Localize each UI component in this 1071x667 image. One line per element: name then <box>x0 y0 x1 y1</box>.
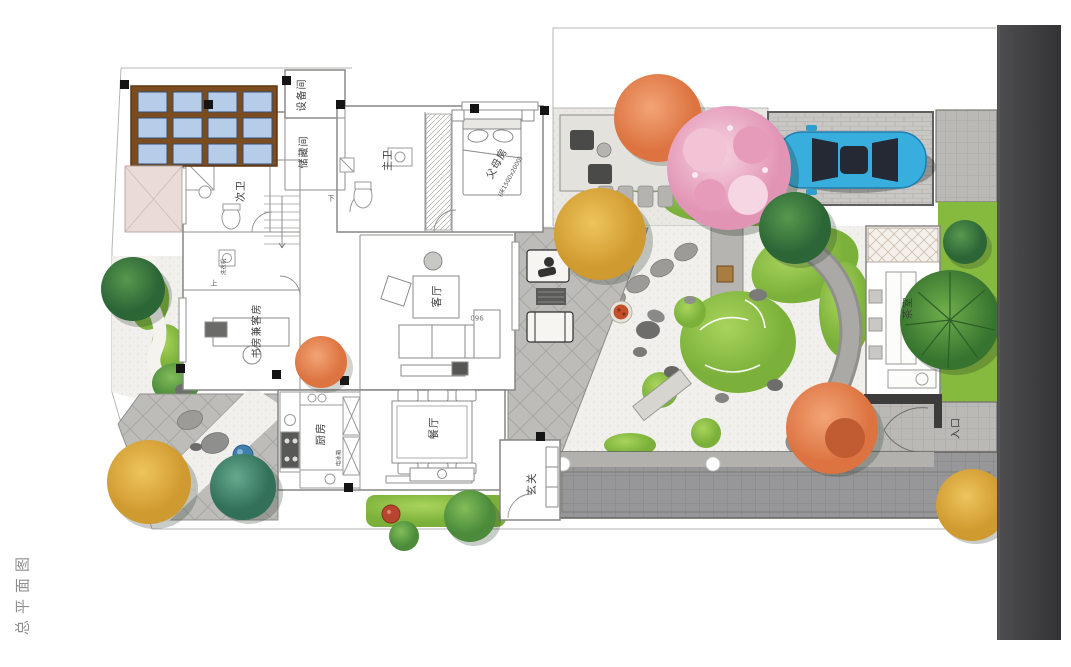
blue-car <box>776 125 936 195</box>
room-label-second-bath: 次卫 <box>237 180 247 202</box>
dark-boundary-strip <box>997 25 1061 640</box>
wardrobe-hatch <box>426 114 451 230</box>
room-label-study: 书房兼客房 <box>253 304 263 359</box>
stair-up-label: 上 <box>211 281 218 288</box>
label-kitchen-cabinet: 电冰箱 <box>337 450 343 467</box>
plan-title: 总平面图 <box>12 551 33 635</box>
bottom-walkway <box>552 452 998 518</box>
red-planter <box>382 505 400 523</box>
room-label-tea-room: 茶室 <box>903 297 914 320</box>
label-laundry: 洗衣机 <box>222 259 228 276</box>
label-entrance: 入口 <box>952 417 962 439</box>
topright-paving <box>936 110 997 202</box>
site-plan-drawing <box>0 0 1071 667</box>
skylight <box>131 86 277 166</box>
pink-terrace <box>125 166 182 232</box>
room-label-foyer: 玄关 <box>527 473 538 496</box>
path-light <box>706 457 720 471</box>
foyer-cabinet <box>546 447 558 507</box>
tree-green-small-bottom <box>389 521 419 551</box>
room-label-master-bath: 主卫 <box>384 149 394 171</box>
room-label-living: 客厅 <box>432 285 443 308</box>
stair-down-label: 下 <box>328 196 335 203</box>
room-label-dining: 餐厅 <box>429 417 440 440</box>
dim-label-960: 960 <box>470 314 483 321</box>
room-label-equipment: 设备间 <box>298 79 308 112</box>
room-label-storage: 储藏间 <box>300 136 310 169</box>
tea-room-south-wall <box>864 394 942 403</box>
room-label-kitchen: 厨房 <box>316 423 327 446</box>
master-plan-canvas: 设备间 储藏间 主卫 次卫 父母房 (床1500x2000) 客厅 960 书房… <box>0 0 1071 667</box>
firepit <box>610 301 632 323</box>
